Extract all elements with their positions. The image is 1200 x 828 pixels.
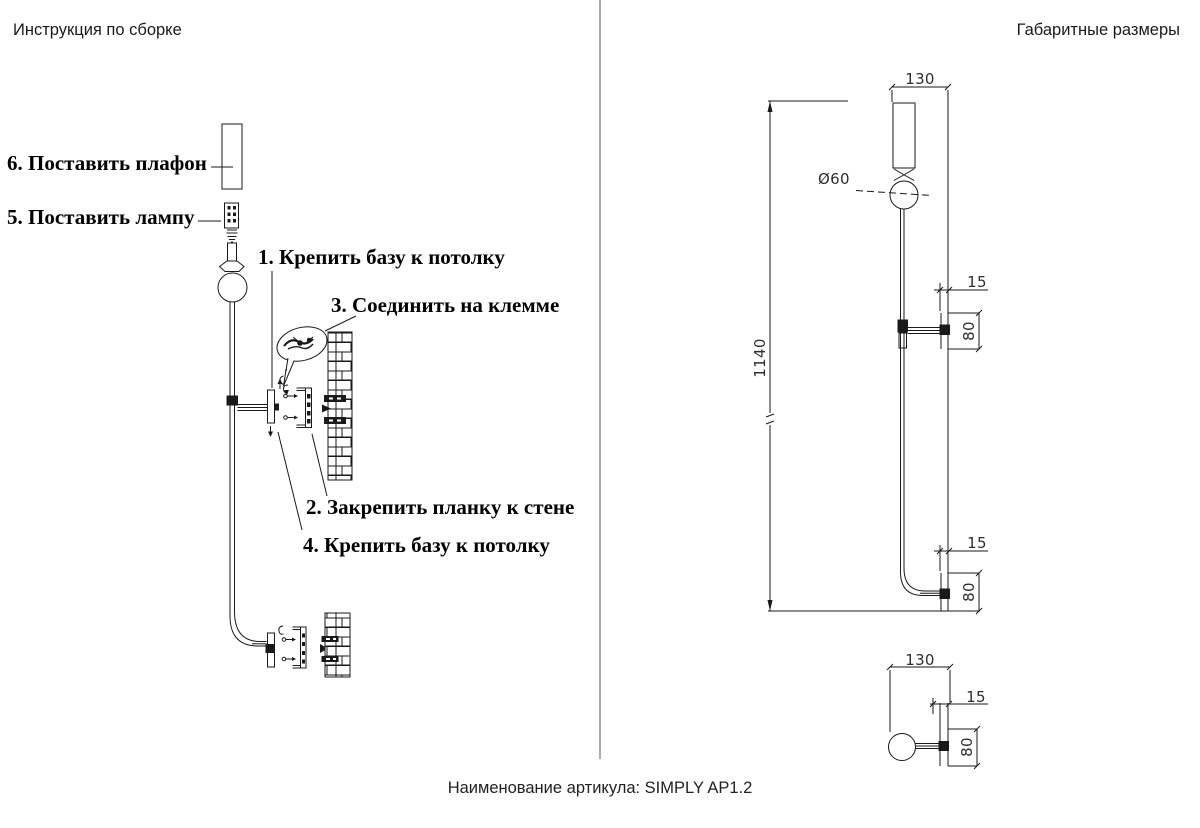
wire-callout-bubble xyxy=(273,321,331,395)
canopy-plate-middle xyxy=(268,379,283,438)
dim-total-height: 1140 xyxy=(752,336,768,380)
dim-offset-mid: 15 xyxy=(960,274,994,290)
mounting-bracket-middle xyxy=(297,388,312,428)
step-4-label: 4. Крепить базу к потолку xyxy=(303,533,550,558)
screws-lower xyxy=(279,626,296,661)
article-caption: Наименование артикула: SIMPLY AP1.2 xyxy=(0,779,1200,798)
lamp-fixture-top xyxy=(218,243,247,302)
lamp-rod xyxy=(227,302,268,646)
dim-base-width-bottom: 130 xyxy=(898,652,942,668)
brick-wall-upper xyxy=(322,332,352,480)
led-bulb xyxy=(198,203,239,242)
step-1-label: 1. Крепить базу к потолку xyxy=(258,245,505,270)
dim-offset-low: 15 xyxy=(960,535,994,551)
canopy-plate-lower xyxy=(266,633,275,667)
dim-plate-bottom: 80 xyxy=(959,725,975,769)
brick-wall-lower xyxy=(322,613,351,677)
instruction-sheet: Инструкция по сборке Габаритные размеры … xyxy=(0,0,1200,828)
dim-plate-low: 80 xyxy=(961,570,977,614)
dim-offset-bottom: 15 xyxy=(959,689,993,705)
dim-sphere-diameter: Ø60 xyxy=(818,171,858,187)
dim-width-130-top xyxy=(889,84,951,611)
left-panel-title: Инструкция по сборке xyxy=(13,21,182,40)
step-3-label: 3. Соединить на клемме xyxy=(331,293,559,318)
step-2-label: 2. Закрепить планку к стене xyxy=(306,495,574,520)
shade-cylinder xyxy=(211,124,242,189)
sphere-outline-right xyxy=(890,181,918,209)
dim-plate-mid: 80 xyxy=(961,309,977,353)
sphere-joint xyxy=(218,273,247,302)
step-5-label: 5. Поставить лампу xyxy=(7,205,195,230)
right-panel-title: Габаритные размеры xyxy=(980,21,1180,40)
dim-shade-width: 130 xyxy=(898,71,942,87)
diameter-leader-line xyxy=(856,191,932,196)
step-6-label: 6. Поставить плафон xyxy=(7,151,207,176)
shade-outline-right xyxy=(893,103,915,181)
rod-outline-right xyxy=(898,209,941,596)
sphere-top-view xyxy=(889,734,916,761)
assembly-linework xyxy=(0,0,1200,828)
